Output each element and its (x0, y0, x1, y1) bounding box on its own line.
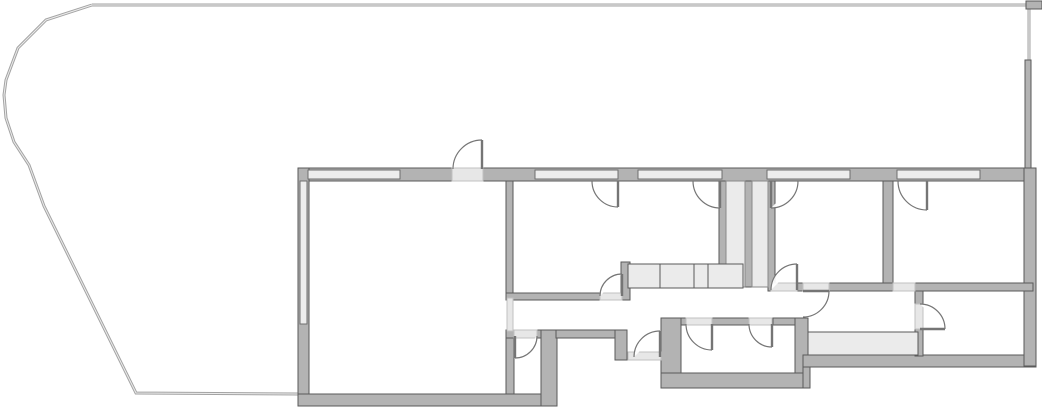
floor-plan-page (0, 0, 1042, 416)
wall-segment (745, 181, 752, 287)
door-swing-arc (515, 336, 537, 358)
bottom-right-room-door (920, 304, 945, 329)
bathroom-door-right (749, 324, 772, 347)
door-threshold (600, 293, 622, 300)
room-a-terrace-door (592, 181, 618, 207)
wc-door (515, 336, 537, 358)
terrace-door-swing-out (453, 140, 482, 169)
wall-segment (712, 318, 749, 325)
wall-segment (829, 283, 893, 291)
door-swing-arc (803, 291, 829, 317)
wall-segment (915, 291, 923, 304)
wall-segment (1025, 60, 1031, 168)
door-threshold (893, 283, 915, 291)
door-threshold (749, 318, 772, 325)
boundary-highlight (4, 5, 298, 394)
wall-segment (298, 394, 557, 406)
wall-segment (661, 373, 808, 388)
kitchen-terrace-door (693, 181, 720, 208)
boundary-corner-block (1026, 1, 1042, 9)
window (767, 170, 850, 179)
wall-segment (773, 318, 795, 325)
door-swing-arc (686, 324, 712, 350)
built-in-cabinet (628, 264, 743, 288)
duct-shaft (752, 181, 768, 287)
wall-segment (506, 293, 600, 300)
hall-corridor-door (803, 291, 829, 317)
wall-segment (615, 330, 627, 360)
window (638, 170, 722, 179)
room-c-terrace-door (898, 181, 927, 210)
door-swing-arc (920, 304, 945, 329)
wall-segment (803, 355, 1036, 367)
wall-segment (1024, 168, 1036, 366)
built-in-cabinet (808, 332, 918, 355)
window (897, 170, 980, 179)
door-threshold (507, 298, 513, 331)
door-threshold (915, 304, 923, 329)
wall-segment (681, 318, 686, 325)
door-swing-arc (453, 140, 482, 169)
wall-segment (506, 181, 513, 298)
wall-segment (541, 330, 557, 406)
wall-segment (803, 365, 810, 388)
wall-segment (556, 330, 617, 338)
bathroom-door-left (686, 324, 712, 350)
door-swing-arc (749, 324, 772, 347)
door-swing-arc (592, 181, 618, 207)
wall-segment (883, 181, 893, 283)
window (308, 170, 400, 179)
windows-layer (300, 170, 980, 324)
walls-layer (298, 60, 1036, 406)
wall-segment (915, 283, 1033, 291)
wall-segment (506, 330, 514, 394)
door-swing-arc (898, 181, 927, 210)
door-threshold (514, 330, 537, 338)
door-threshold (628, 352, 661, 360)
boundary-curve (4, 5, 298, 394)
door-threshold (452, 168, 483, 181)
door-threshold (686, 318, 712, 325)
door-swing-arc (693, 181, 720, 208)
window (535, 170, 618, 179)
floorplan-svg (0, 0, 1042, 416)
window (300, 181, 307, 324)
